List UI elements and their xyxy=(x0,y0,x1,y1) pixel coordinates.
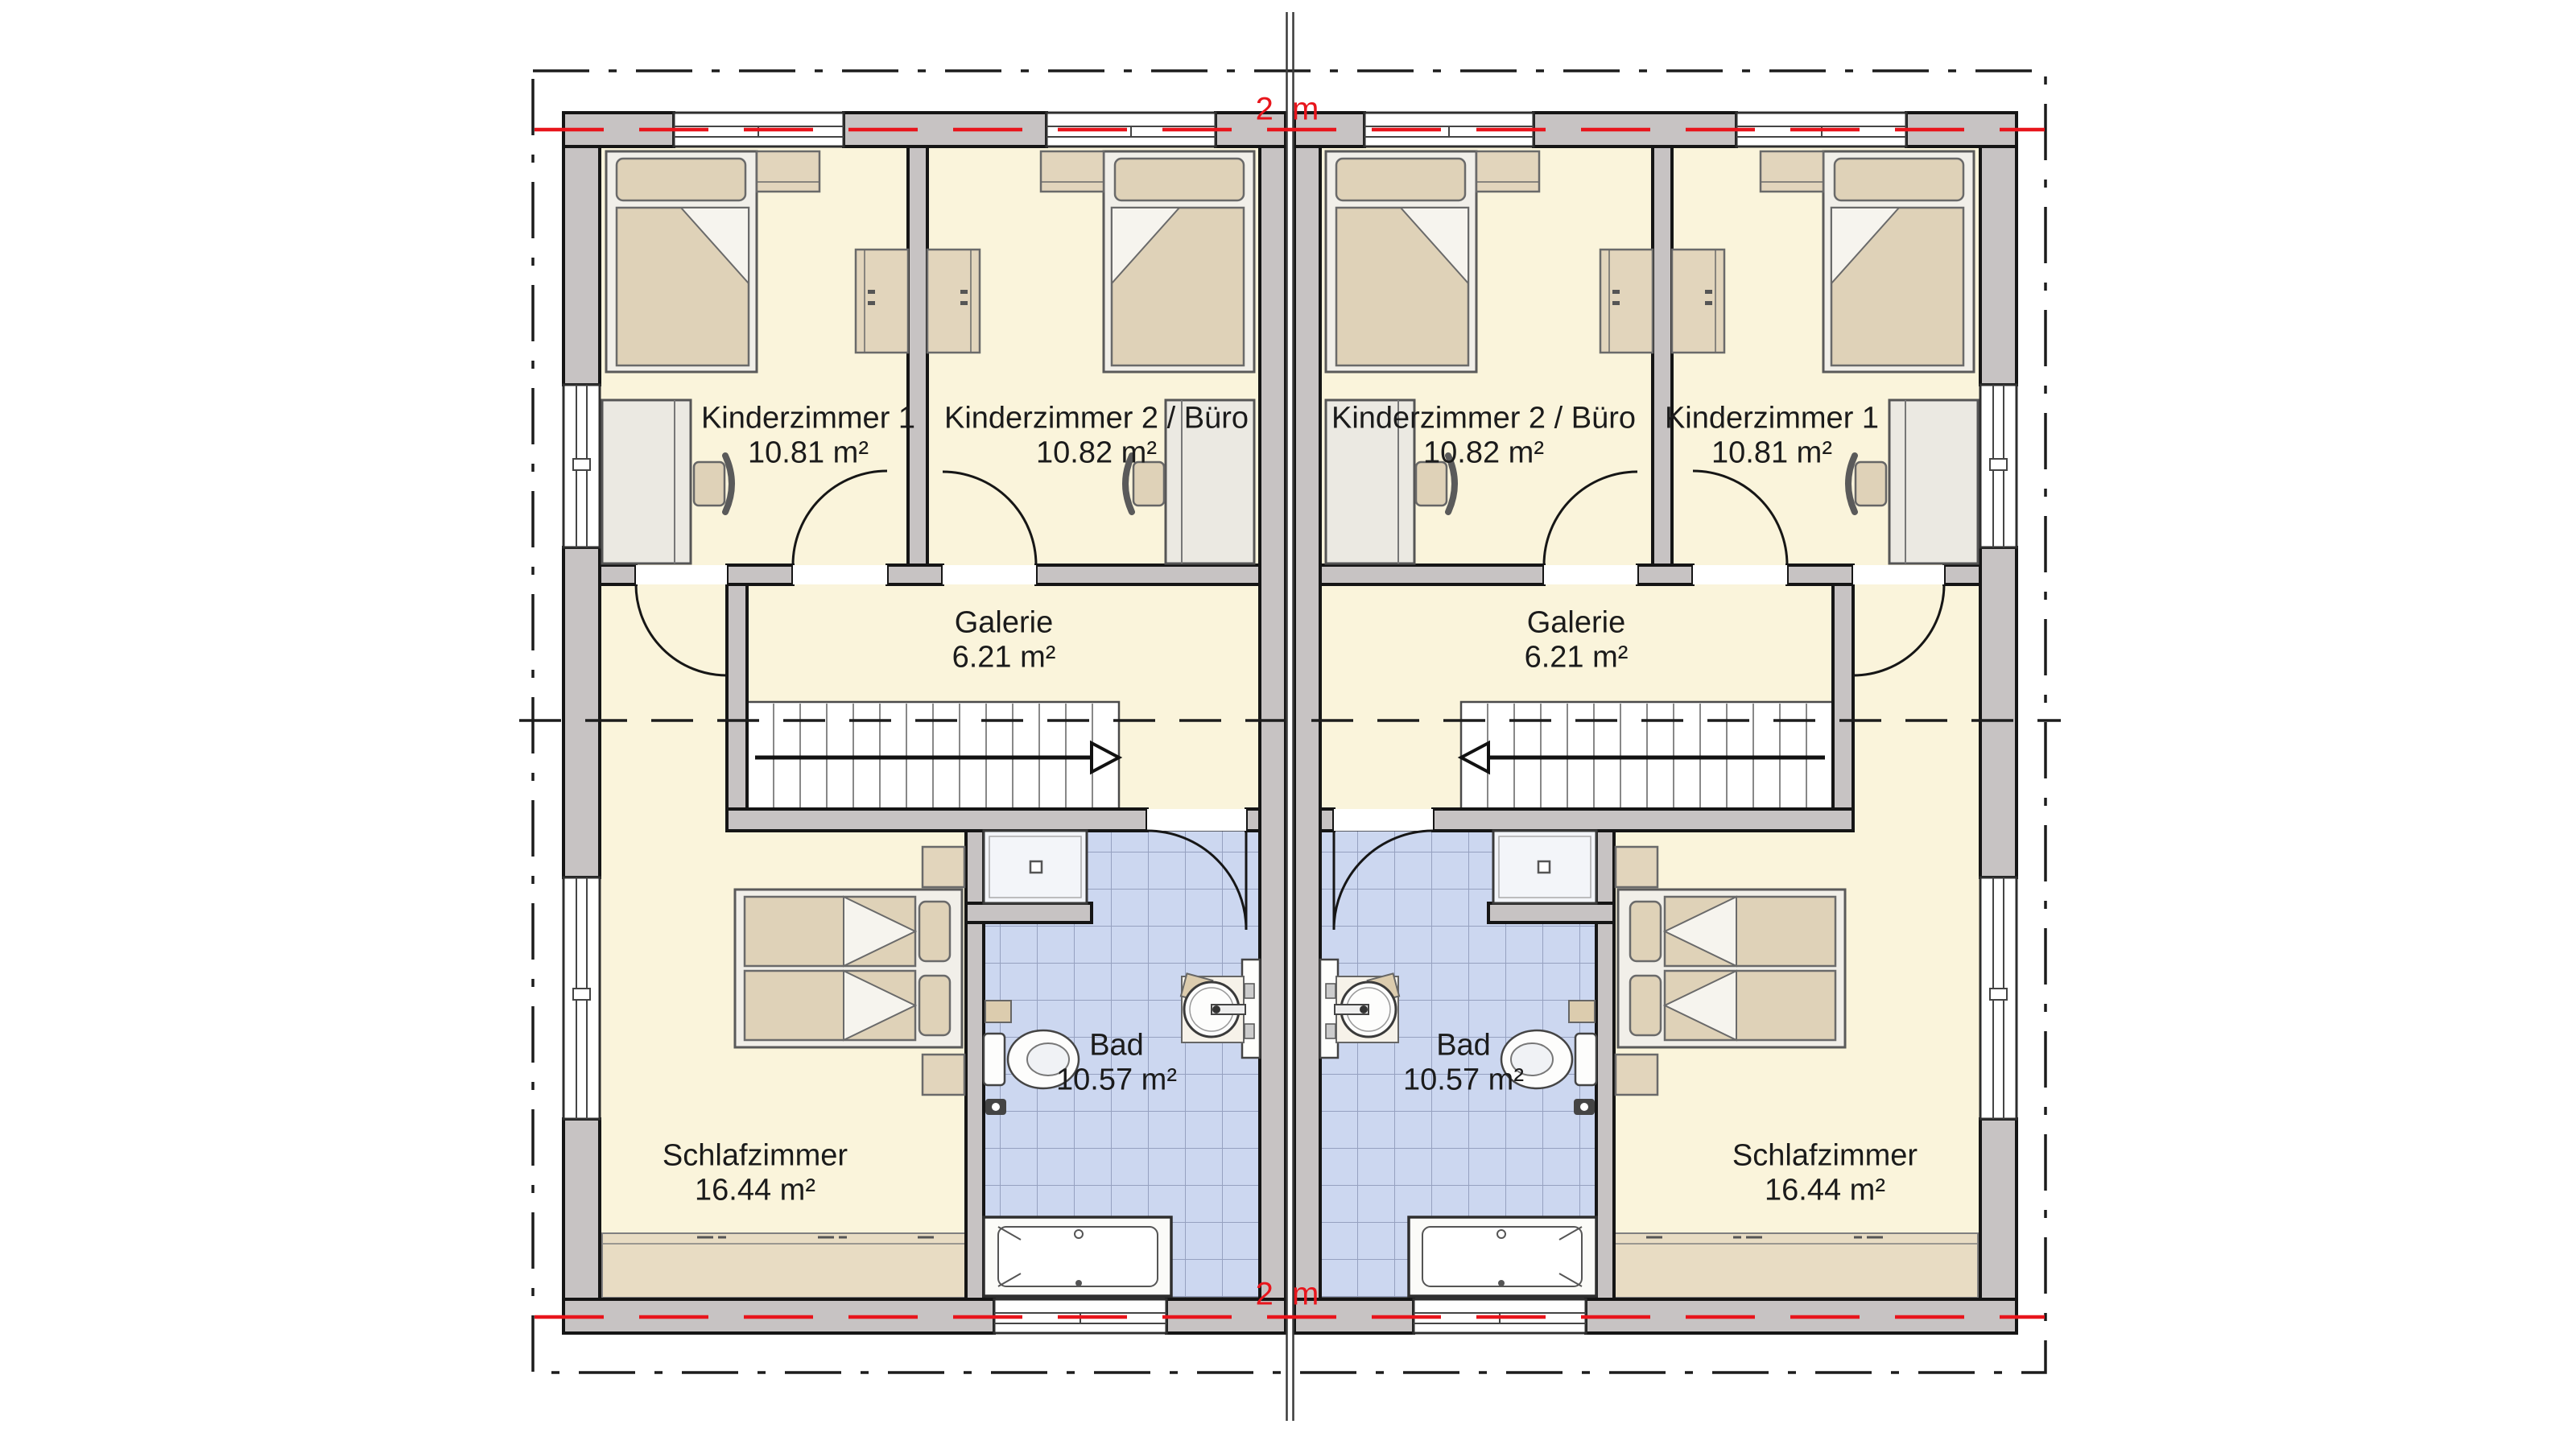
room-name: Kinderzimmer 2 / Büro xyxy=(944,401,1249,436)
room-name: Kinderzimmer 1 xyxy=(701,401,915,436)
floor-plan-drawing xyxy=(0,0,2576,1449)
room-label-schlafzimmer-right: Schlafzimmer 16.44 m² xyxy=(1732,1138,1918,1207)
room-area: 6.21 m² xyxy=(1525,640,1629,675)
room-area: 10.57 m² xyxy=(1056,1063,1177,1097)
room-label-schlafzimmer-left: Schlafzimmer 16.44 m² xyxy=(663,1138,848,1207)
room-label-bad-right: Bad 10.57 m² xyxy=(1403,1028,1524,1096)
room-name: Schlafzimmer xyxy=(663,1138,848,1173)
room-label-kinderzimmer2-left: Kinderzimmer 2 / Büro 10.82 m² xyxy=(944,401,1249,469)
room-area: 10.57 m² xyxy=(1403,1063,1524,1097)
dimension-label-bottom: 2 m xyxy=(1256,1277,1324,1313)
room-label-galerie-left: Galerie 6.21 m² xyxy=(952,605,1056,674)
room-area: 16.44 m² xyxy=(663,1173,848,1207)
room-name: Bad xyxy=(1056,1028,1177,1063)
room-name: Galerie xyxy=(952,605,1056,640)
room-area: 16.44 m² xyxy=(1732,1173,1918,1207)
room-label-bad-left: Bad 10.57 m² xyxy=(1056,1028,1177,1096)
room-area: 10.82 m² xyxy=(1331,436,1636,470)
room-label-kinderzimmer1-right: Kinderzimmer 1 10.81 m² xyxy=(1665,401,1879,469)
room-name: Kinderzimmer 1 xyxy=(1665,401,1879,436)
room-name: Kinderzimmer 2 / Büro xyxy=(1331,401,1636,436)
room-area: 10.81 m² xyxy=(701,436,915,470)
floor-plan-canvas: Kinderzimmer 1 10.81 m² Kinderzimmer 2 /… xyxy=(0,0,2576,1449)
room-name: Schlafzimmer xyxy=(1732,1138,1918,1173)
room-area: 10.81 m² xyxy=(1665,436,1879,470)
dimension-label-top: 2 m xyxy=(1256,92,1324,128)
room-name: Bad xyxy=(1403,1028,1524,1063)
room-label-galerie-right: Galerie 6.21 m² xyxy=(1525,605,1629,674)
party-wall-axis-line xyxy=(1287,12,1294,1421)
room-area: 6.21 m² xyxy=(952,640,1056,675)
room-label-kinderzimmer2-right: Kinderzimmer 2 / Büro 10.82 m² xyxy=(1331,401,1636,469)
room-name: Galerie xyxy=(1525,605,1629,640)
room-label-kinderzimmer1-left: Kinderzimmer 1 10.81 m² xyxy=(701,401,915,469)
room-area: 10.82 m² xyxy=(944,436,1249,470)
